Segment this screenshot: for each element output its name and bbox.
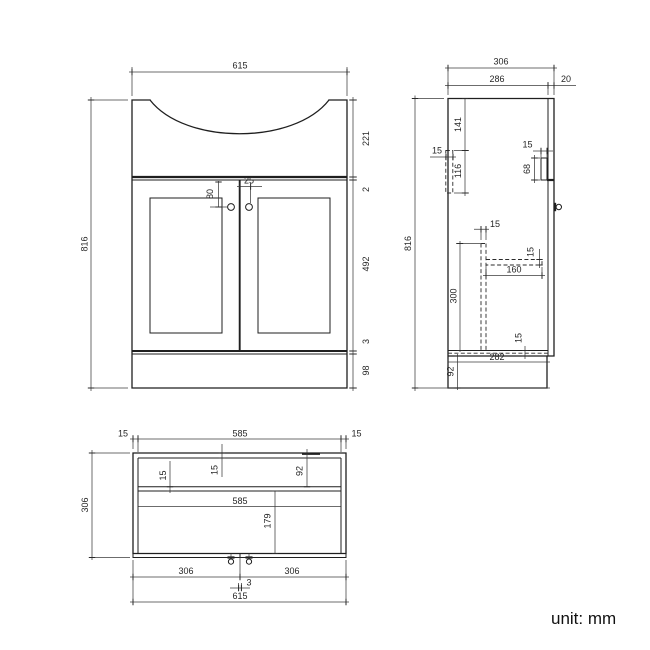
front-elevation-view: 615 816 221 2 492 3 98 80 25 — [80, 61, 372, 392]
dim-plan-internal-width-top: 585 — [232, 429, 247, 439]
dim-side-door-thickness: 20 — [561, 74, 571, 84]
front-dimensions: 615 816 221 2 492 3 98 80 25 — [80, 61, 372, 392]
plan-dimension-lines — [89, 435, 349, 605]
dim-front-knob-offset: 25 — [244, 176, 254, 186]
side-section-view: 306 286 20 816 141 116 15 15 68 15 300 1… — [403, 57, 576, 392]
dim-side-shelf-thickness: 15 — [526, 247, 536, 257]
dim-plan-overall-width: 615 — [232, 591, 247, 601]
dim-plan-left-wall: 15 — [118, 429, 128, 439]
dim-side-rail-height: 116 — [453, 164, 463, 178]
plan-left-knob-icon — [228, 559, 233, 564]
side-knob-icon — [556, 204, 561, 209]
plan-view: 15 585 15 306 92 15 15 585 179 306 306 3… — [80, 429, 362, 606]
dim-front-basin-height: 221 — [361, 131, 371, 146]
dim-plan-basin-front-depth: 179 — [263, 513, 273, 528]
dimension-tick-marks — [88, 65, 554, 605]
dim-front-bottom-gap: 3 — [361, 339, 371, 344]
dim-side-overall-height: 816 — [403, 236, 413, 251]
tick-marks-path — [88, 65, 554, 605]
dim-front-overall-width: 615 — [232, 61, 247, 71]
plan-right-knob-icon — [246, 559, 251, 564]
dim-plan-door-width-right: 306 — [284, 566, 299, 576]
vanity-unit-technical-drawing: 615 816 221 2 492 3 98 80 25 306 286 20 … — [0, 0, 650, 650]
dim-side-plinth-recess: 92 — [446, 366, 456, 376]
dim-side-filler-thickness: 15 — [522, 140, 532, 150]
dim-front-overall-height: 816 — [80, 236, 90, 251]
dim-plan-internal-width: 585 — [232, 496, 247, 506]
side-support-panel-dashed — [481, 244, 486, 351]
dim-side-support-height: 300 — [449, 288, 459, 303]
dim-front-plinth-height: 98 — [361, 365, 371, 375]
dim-plan-door-width-left: 306 — [178, 566, 193, 576]
dim-plan-right-wall: 15 — [351, 429, 361, 439]
dim-side-shelf-depth: 160 — [506, 265, 521, 275]
dim-side-carcass-depth: 286 — [489, 74, 504, 84]
dim-plan-basin-back-depth: 92 — [295, 466, 305, 476]
dim-side-bottom-depth: 282 — [489, 352, 504, 362]
dim-side-filler-height: 68 — [522, 164, 532, 174]
front-left-knob-icon — [228, 204, 235, 211]
dim-side-rail-thickness: 15 — [432, 146, 442, 156]
front-door-bottom-and-divider — [132, 180, 347, 351]
side-front-filler — [541, 158, 547, 180]
dim-plan-overall-depth: 306 — [80, 497, 90, 512]
dim-plan-door-gap: 3 — [246, 578, 251, 588]
plan-dimensions: 15 585 15 306 92 15 15 585 179 306 306 3… — [80, 429, 362, 606]
dim-side-bottom-thickness: 15 — [514, 333, 524, 343]
side-dimensions: 306 286 20 816 141 116 15 15 68 15 300 1… — [403, 57, 576, 392]
dim-side-rail-top-offset: 141 — [453, 117, 463, 132]
dim-front-top-gap: 2 — [361, 187, 371, 192]
dim-front-door-height: 492 — [361, 256, 371, 271]
dim-plan-rail-thickness: 15 — [158, 470, 168, 480]
dim-side-overall-depth: 306 — [493, 57, 508, 67]
dim-side-support-thickness: 15 — [490, 219, 500, 229]
front-right-knob-icon — [246, 204, 253, 211]
dim-front-knob-drop: 80 — [205, 189, 215, 199]
dim-plan-back-wall: 15 — [210, 465, 220, 475]
units-label: unit: mm — [551, 609, 616, 628]
